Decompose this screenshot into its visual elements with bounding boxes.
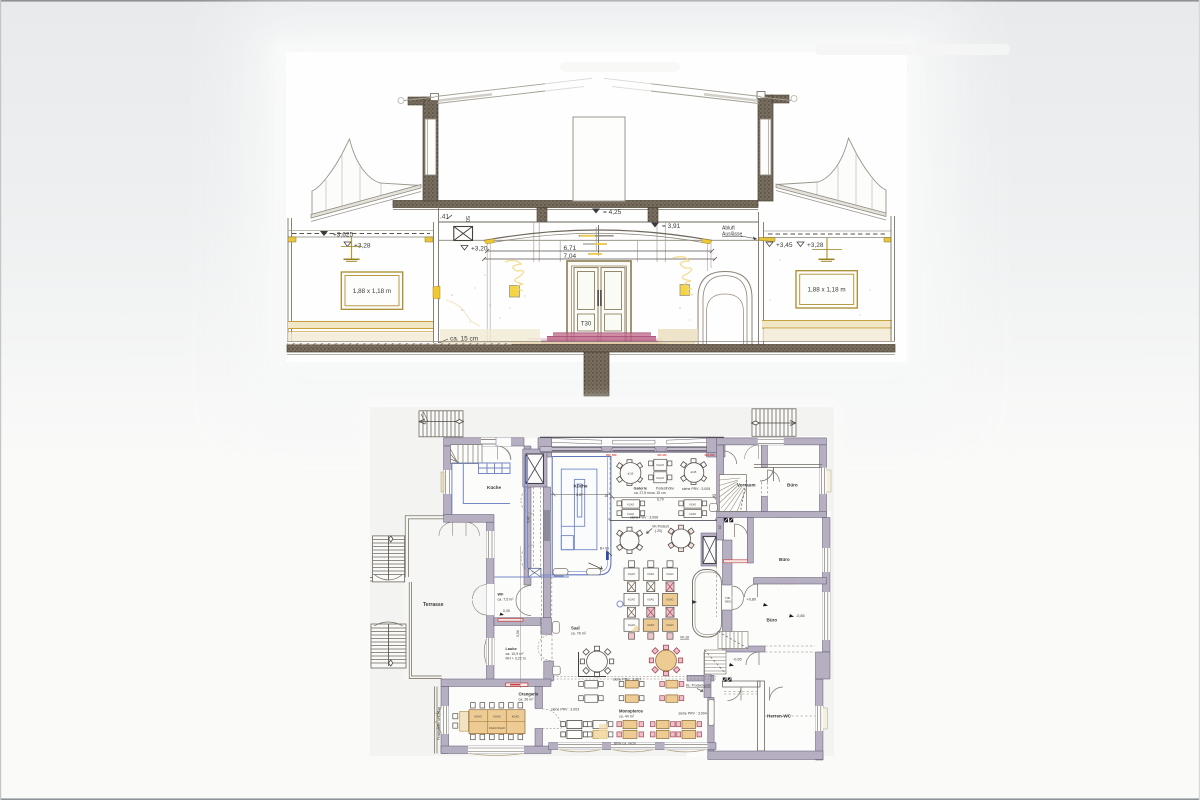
svg-text:ca. 7,5 m²: ca. 7,5 m² bbox=[498, 598, 515, 602]
svg-text:B+ 81: B+ 81 bbox=[600, 547, 609, 551]
svg-text:1,88 x 1,18 m: 1,88 x 1,18 m bbox=[353, 288, 391, 295]
svg-text:KGAO: KGAO bbox=[689, 504, 696, 507]
svg-text:KGAO: KGAO bbox=[628, 624, 635, 627]
svg-text:Terrasse: Terrasse bbox=[423, 602, 444, 608]
svg-text:KGAO: KGAO bbox=[647, 573, 654, 576]
svg-text:3,67: 3,67 bbox=[576, 493, 583, 497]
svg-text:ca. 10,9 m²: ca. 10,9 m² bbox=[506, 652, 525, 656]
svg-text:= 4,25: = 4,25 bbox=[603, 209, 622, 216]
svg-text:50: 50 bbox=[464, 216, 470, 222]
svg-text:KGAO: KGAO bbox=[647, 624, 654, 627]
svg-text:ø115: ø115 bbox=[691, 470, 697, 474]
svg-text:KGAO: KGAO bbox=[667, 599, 674, 602]
svg-text:siehe PRV : 3.005: siehe PRV : 3.005 bbox=[682, 487, 710, 491]
svg-text:= 3,91: = 3,91 bbox=[662, 223, 681, 230]
svg-text:3,40: 3,40 bbox=[527, 516, 531, 523]
svg-text:KGAO: KGAO bbox=[657, 476, 665, 480]
svg-text:KGAO: KGAO bbox=[647, 599, 654, 602]
svg-text:siehe PRV : 3.007: siehe PRV : 3.007 bbox=[613, 678, 641, 682]
svg-text:KGAO: KGAO bbox=[493, 715, 501, 719]
svg-text:+0,80: +0,80 bbox=[747, 598, 757, 602]
svg-text:+3,28: +3,28 bbox=[807, 242, 824, 249]
svg-text:Fensterhöhe ca 1,90 m: Fensterhöhe ca 1,90 m bbox=[437, 707, 441, 740]
svg-text:1,88 x 1,18 m: 1,88 x 1,18 m bbox=[808, 287, 846, 294]
svg-text:RH + 3,22 m: RH + 3,22 m bbox=[506, 657, 526, 661]
svg-text:KGAO: KGAO bbox=[657, 463, 665, 467]
svg-text:Vorraum: Vorraum bbox=[737, 483, 756, 488]
svg-text:Monopteros: Monopteros bbox=[619, 709, 644, 714]
svg-text:Saal: Saal bbox=[571, 626, 580, 631]
svg-text:10: 10 bbox=[718, 525, 722, 529]
svg-text:Auslässe: Auslässe bbox=[722, 232, 743, 238]
svg-text:KGAO: KGAO bbox=[667, 573, 674, 576]
svg-text:KGAO: KGAO bbox=[628, 599, 635, 602]
svg-text:Büro: Büro bbox=[779, 557, 790, 562]
svg-text:KGAO: KGAO bbox=[627, 504, 634, 507]
svg-text:Laube: Laube bbox=[506, 647, 517, 651]
svg-text:KGAO: KGAO bbox=[628, 573, 635, 576]
svg-text:Büro: Büro bbox=[767, 618, 778, 623]
svg-text:(.20): (.20) bbox=[655, 529, 662, 533]
svg-text:Herren-WC: Herren-WC bbox=[767, 714, 792, 719]
svg-text:ca. 44 m²: ca. 44 m² bbox=[619, 715, 635, 719]
svg-text:0,30: 0,30 bbox=[503, 609, 510, 613]
svg-text:ca. 26 m²: ca. 26 m² bbox=[519, 698, 535, 702]
svg-text:WF: WF bbox=[498, 593, 505, 597]
svg-text:6,79: 6,79 bbox=[657, 498, 664, 502]
svg-text:BRH ca. xxcm: BRH ca. xxcm bbox=[614, 742, 636, 746]
svg-text:KGAO: KGAO bbox=[474, 715, 482, 719]
svg-text:VK.sit: VK.sit bbox=[680, 636, 689, 640]
svg-text:15: 15 bbox=[712, 493, 716, 497]
svg-text:ca. 76 m²: ca. 76 m² bbox=[571, 632, 587, 636]
svg-text:3,54: 3,54 bbox=[516, 630, 520, 637]
svg-text:T30: T30 bbox=[581, 322, 592, 328]
svg-text:ø115: ø115 bbox=[628, 471, 634, 475]
svg-text:KGAO: KGAO bbox=[689, 513, 696, 516]
svg-text:+3,45: +3,45 bbox=[776, 242, 793, 249]
svg-text:Galerie: Galerie bbox=[634, 486, 648, 491]
svg-text:Orangerie: Orangerie bbox=[519, 692, 539, 697]
svg-text:-0,95: -0,95 bbox=[733, 658, 742, 662]
svg-text:Küche: Küche bbox=[574, 484, 588, 489]
svg-text:siehe PRV : 3.003: siehe PRV : 3.003 bbox=[551, 708, 579, 712]
svg-text:+3,625: +3,625 bbox=[333, 232, 353, 239]
svg-text:15: 15 bbox=[604, 494, 608, 498]
svg-text:Küche: Küche bbox=[487, 485, 501, 490]
svg-text:siehe PRV : 3.006: siehe PRV : 3.006 bbox=[630, 516, 658, 520]
svg-text:VK-Podest: VK-Podest bbox=[652, 525, 669, 529]
svg-text:-0,85: -0,85 bbox=[796, 614, 805, 618]
svg-text:KL-Trockenputz: KL-Trockenputz bbox=[686, 684, 711, 688]
svg-text:ca. 27,5 m²ca. 15 cm: ca. 27,5 m²ca. 15 cm bbox=[634, 491, 666, 495]
svg-text:+3,20: +3,20 bbox=[471, 246, 488, 253]
svg-text:.41: .41 bbox=[440, 214, 449, 221]
svg-text:KGAO: KGAO bbox=[512, 715, 520, 719]
svg-text:KGAO KGAO: KGAO KGAO bbox=[489, 726, 505, 730]
svg-text:NEU: NEU bbox=[725, 600, 731, 604]
svg-text:siehe PRV : 3.004: siehe PRV : 3.004 bbox=[679, 712, 707, 716]
svg-text:+3,28: +3,28 bbox=[354, 243, 371, 250]
svg-text:Podesthöhe: Podesthöhe bbox=[656, 487, 674, 491]
svg-text:KGAO: KGAO bbox=[667, 624, 674, 627]
svg-text:Büro: Büro bbox=[787, 483, 798, 488]
